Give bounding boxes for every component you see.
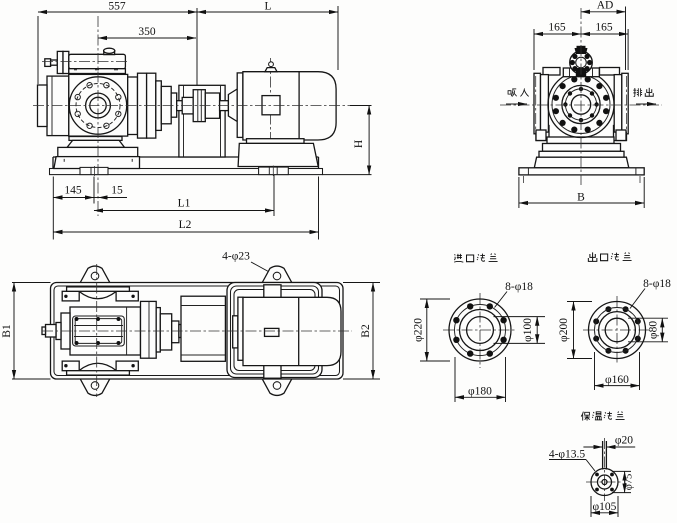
- svg-text:AD: AD: [597, 0, 614, 12]
- svg-text:557: 557: [108, 1, 126, 13]
- svg-text:8-φ18: 8-φ18: [505, 281, 533, 293]
- svg-text:8-φ18: 8-φ18: [643, 278, 671, 290]
- svg-text:φ100: φ100: [522, 318, 534, 342]
- svg-text:B1: B1: [1, 324, 13, 338]
- svg-text:L2: L2: [179, 219, 192, 231]
- svg-text:4-φ13.5: 4-φ13.5: [549, 449, 586, 461]
- svg-text:145: 145: [64, 185, 82, 197]
- svg-text:φ105: φ105: [593, 501, 617, 513]
- svg-text:φ180: φ180: [468, 386, 492, 398]
- svg-text:B: B: [577, 192, 585, 204]
- svg-text:B2: B2: [360, 324, 372, 338]
- svg-text:15: 15: [111, 185, 123, 197]
- svg-text:H: H: [353, 140, 365, 148]
- svg-text:φ80: φ80: [648, 321, 660, 339]
- svg-text:φ200: φ200: [558, 318, 570, 342]
- svg-text:350: 350: [138, 26, 156, 38]
- svg-text:165: 165: [548, 22, 566, 34]
- svg-text:165: 165: [595, 22, 613, 34]
- svg-text:4-φ23: 4-φ23: [222, 251, 250, 263]
- svg-text:φ160: φ160: [605, 374, 629, 386]
- svg-text:L: L: [264, 1, 271, 13]
- svg-text:φ75: φ75: [624, 474, 635, 491]
- svg-text:L1: L1: [178, 198, 191, 210]
- svg-text:φ20: φ20: [615, 435, 633, 447]
- svg-text:φ220: φ220: [413, 318, 425, 342]
